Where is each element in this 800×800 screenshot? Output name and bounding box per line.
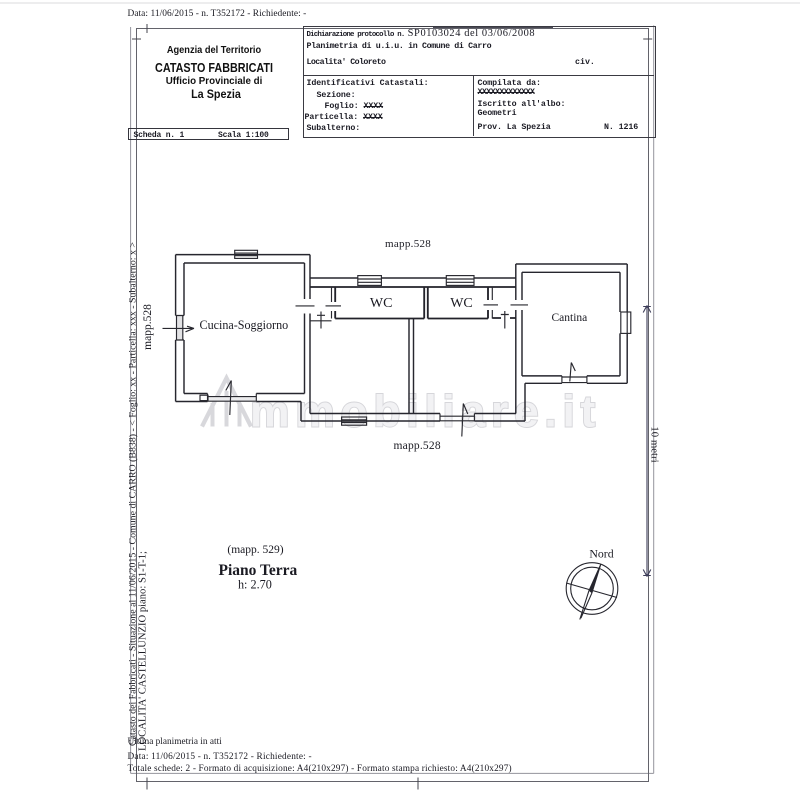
svg-text:mapp.528: mapp.528 xyxy=(142,304,154,350)
svg-text:10 metri: 10 metri xyxy=(649,426,661,462)
svg-text:LOCALITA' CASTELLUNZIO piano:: LOCALITA' CASTELLUNZIO piano: S1-T-1; xyxy=(138,551,149,751)
